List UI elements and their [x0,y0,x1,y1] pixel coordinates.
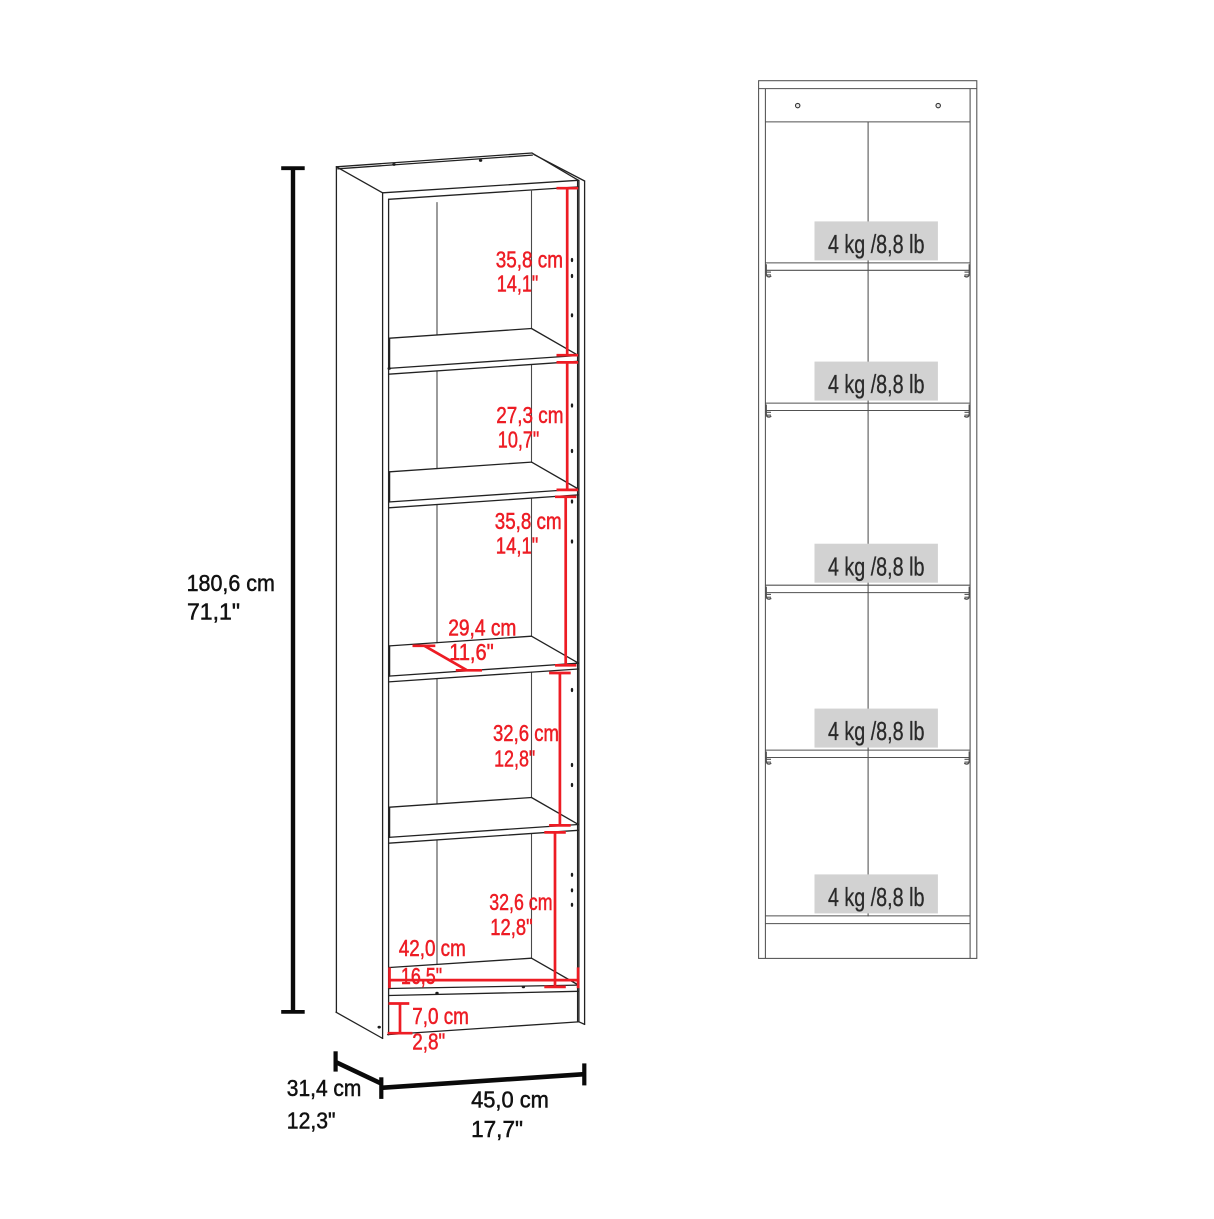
svg-text:16,5": 16,5" [401,963,442,989]
svg-text:42,0 cm: 42,0 cm [399,935,466,961]
svg-text:32,6 cm: 32,6 cm [489,889,552,915]
svg-text:4 kg /8,8 lb: 4 kg /8,8 lb [828,551,925,581]
svg-text:32,6 cm: 32,6 cm [493,720,559,746]
svg-text:12,8": 12,8" [490,914,532,940]
svg-text:10,7": 10,7" [498,427,540,453]
svg-text:14,1": 14,1" [496,533,539,559]
svg-text:12,3": 12,3" [287,1108,336,1134]
svg-text:12,8": 12,8" [494,746,535,772]
svg-text:2,8": 2,8" [412,1029,445,1055]
svg-text:4 kg /8,8 lb: 4 kg /8,8 lb [828,229,925,259]
svg-text:4 kg /8,8 lb: 4 kg /8,8 lb [828,369,925,399]
svg-text:35,8 cm: 35,8 cm [496,247,563,273]
svg-text:27,3 cm: 27,3 cm [496,402,563,428]
svg-text:4 kg /8,8 lb: 4 kg /8,8 lb [828,882,925,912]
svg-text:35,8 cm: 35,8 cm [495,508,562,534]
svg-text:11,6": 11,6" [449,639,494,665]
svg-text:4 kg /8,8 lb: 4 kg /8,8 lb [828,716,925,746]
svg-text:180,6 cm: 180,6 cm [187,570,275,596]
svg-text:45,0 cm: 45,0 cm [471,1087,549,1113]
svg-text:14,1": 14,1" [497,270,539,296]
svg-text:31,4 cm: 31,4 cm [287,1075,362,1101]
svg-text:29,4 cm: 29,4 cm [448,615,516,641]
svg-text:71,1": 71,1" [187,599,240,625]
svg-text:17,7": 17,7" [471,1116,523,1142]
svg-text:7,0 cm: 7,0 cm [412,1003,469,1029]
